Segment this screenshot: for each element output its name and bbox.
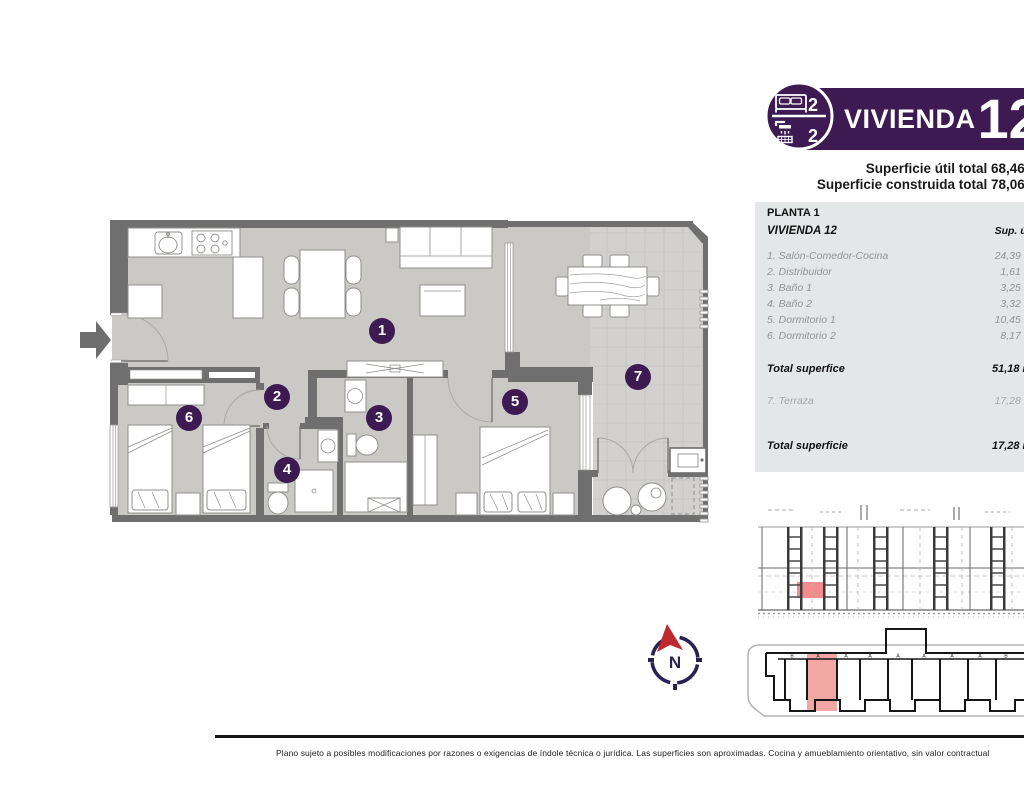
plan-document-page: VIVIENDA 12 2 2 Superfici — [0, 0, 1024, 800]
unit-title: VIVIENDA — [844, 104, 976, 135]
room-number-badge-4: 4 — [274, 457, 300, 483]
compass-n-label: N — [669, 653, 681, 672]
building-outline — [766, 629, 1024, 711]
room-row: 4. Baño 23,32 m² — [755, 298, 1024, 314]
surface-totals: Superficie útil total 68,46 m² Superfici… — [690, 161, 1024, 192]
room-number-badge-3: 3 — [366, 405, 392, 431]
room-number-badge-6: 6 — [176, 405, 202, 431]
unit-number: 12 — [978, 88, 1024, 150]
compass-icon: N — [635, 612, 715, 697]
disclaimer-text: Plano sujeto a posibles modificaciones p… — [276, 748, 1024, 758]
total-superfice-value: 51,18 m² — [950, 363, 1024, 375]
room-row: 5. Dormitorio 110,45 m² — [755, 314, 1024, 330]
room-row: 3. Baño 13,25 m² — [755, 282, 1024, 298]
toilet-bath2 — [268, 492, 288, 514]
site-plan-svg: BAAAAAAAB — [744, 620, 1024, 732]
room-rows: 1. Salón-Comedor-Cocina24,39 m²2. Distri… — [755, 250, 1024, 346]
ac-unit — [670, 448, 706, 473]
north-arrow — [657, 624, 683, 652]
room-row: 2. Distribuidor1,61 m² — [755, 266, 1024, 282]
elevation-drawing — [755, 498, 1024, 624]
summary-table: PLANTA 1 VIVIENDA 12 Sup. útil 1. Salón-… — [755, 202, 1024, 472]
floor-plan — [70, 215, 720, 530]
toilet-bath1 — [356, 435, 378, 455]
total-superfice-label: Total superfice — [767, 363, 845, 375]
room-row: 6. Dormitorio 28,17 m² — [755, 330, 1024, 346]
room-number-badge-2: 2 — [264, 384, 290, 410]
terrace-chair-1 — [603, 487, 631, 515]
bathrooms-count: 2 — [808, 126, 818, 146]
dining-table — [300, 250, 345, 318]
coffee-table — [420, 285, 465, 316]
terraza-label: 7. Terraza — [767, 395, 814, 407]
room-number-badge-7: 7 — [625, 364, 651, 390]
tv-unit — [347, 361, 443, 377]
terrace-table — [568, 267, 647, 305]
shower-bath2 — [295, 470, 333, 512]
site-highlight-unit — [807, 653, 837, 711]
room-row: 1. Salón-Comedor-Cocina24,39 m² — [755, 250, 1024, 266]
column-header-sup-util: Sup. útil — [950, 225, 1024, 237]
bedrooms-count: 2 — [808, 95, 818, 115]
entrance-arrow-icon — [80, 321, 111, 359]
terrace-chair-2 — [638, 483, 666, 511]
total-superficie-value: 17,28 m² — [950, 440, 1024, 452]
terraza-value: 17,28 m² — [950, 395, 1024, 407]
total-superficie-label: Total superficie — [767, 440, 848, 452]
unit-icon-circle: 2 2 — [763, 80, 835, 152]
floor-label: PLANTA 1 — [767, 207, 820, 219]
superficie-construida-total: Superficie construida total 78,06 m² — [690, 177, 1024, 193]
sofa — [400, 227, 492, 268]
table-unit-label: VIVIENDA 12 — [767, 225, 837, 237]
room-number-badge-1: 1 — [369, 318, 395, 344]
room-number-badge-5: 5 — [502, 389, 528, 415]
superficie-util-total: Superficie útil total 68,46 m² — [690, 161, 1024, 177]
footer-divider — [215, 735, 1024, 738]
